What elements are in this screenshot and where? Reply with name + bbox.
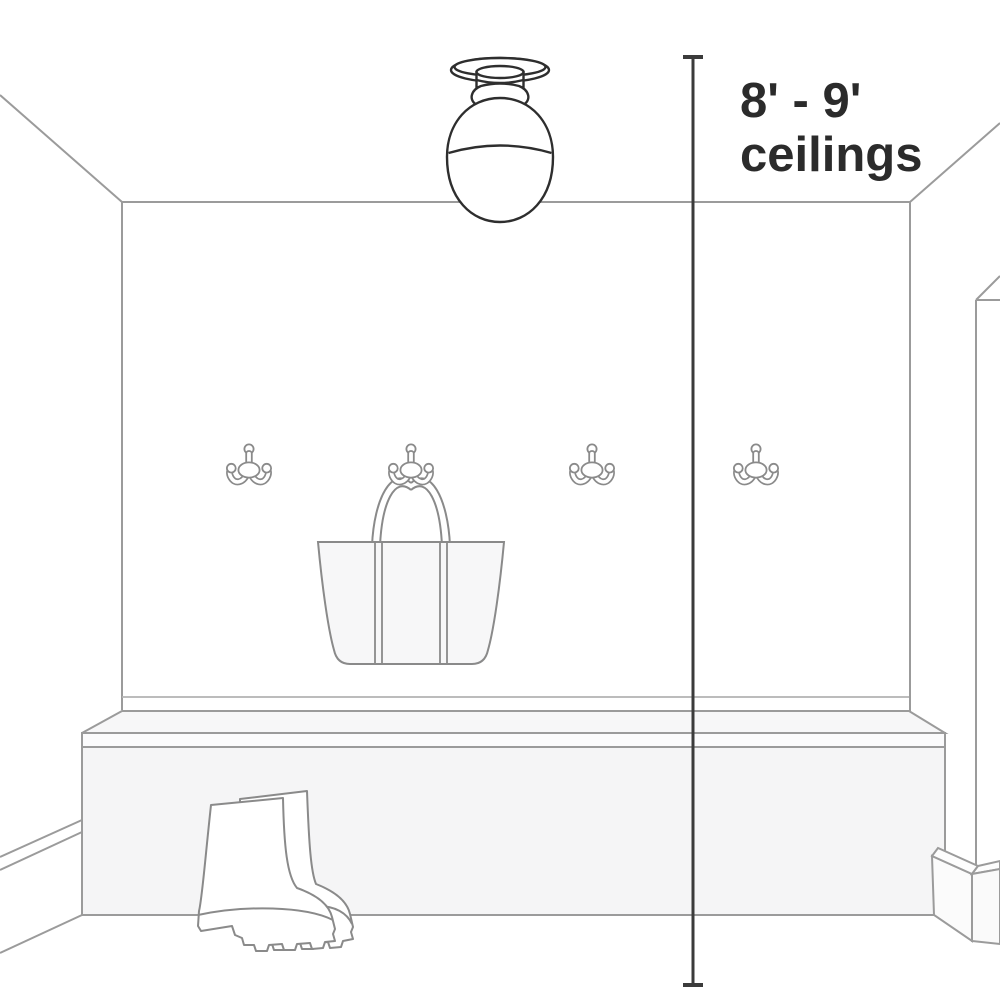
ceiling-corner-right-line bbox=[910, 123, 1000, 202]
tote-bag-body bbox=[318, 542, 504, 664]
ceiling-corner-left-line bbox=[0, 95, 122, 202]
doorway-miter-line bbox=[976, 276, 1000, 300]
left-floor-line bbox=[0, 915, 82, 953]
bench-top-surface bbox=[82, 711, 945, 733]
right-baseboard-return-face bbox=[972, 869, 1000, 944]
ceiling-height-diagram: 8' - 9' ceilings bbox=[0, 0, 1000, 1000]
bench-front-band bbox=[82, 733, 945, 747]
ceiling-light-illustration bbox=[447, 58, 553, 222]
fixture-globe bbox=[447, 98, 553, 222]
ceiling-height-caption: 8' - 9' ceilings bbox=[740, 74, 922, 182]
caption-line1: 8' - 9' bbox=[740, 74, 922, 128]
coat-hook-icon bbox=[227, 444, 271, 481]
fixture-stem-top bbox=[477, 66, 524, 78]
right-baseboard bbox=[932, 848, 1000, 944]
coat-hook-icon bbox=[389, 444, 433, 481]
tote-bag-illustration bbox=[318, 444, 504, 664]
caption-line2: ceilings bbox=[740, 128, 922, 182]
coat-hook-icon bbox=[570, 444, 614, 481]
tote-bag-handles bbox=[372, 478, 450, 546]
coat-hook-icon bbox=[734, 444, 778, 481]
